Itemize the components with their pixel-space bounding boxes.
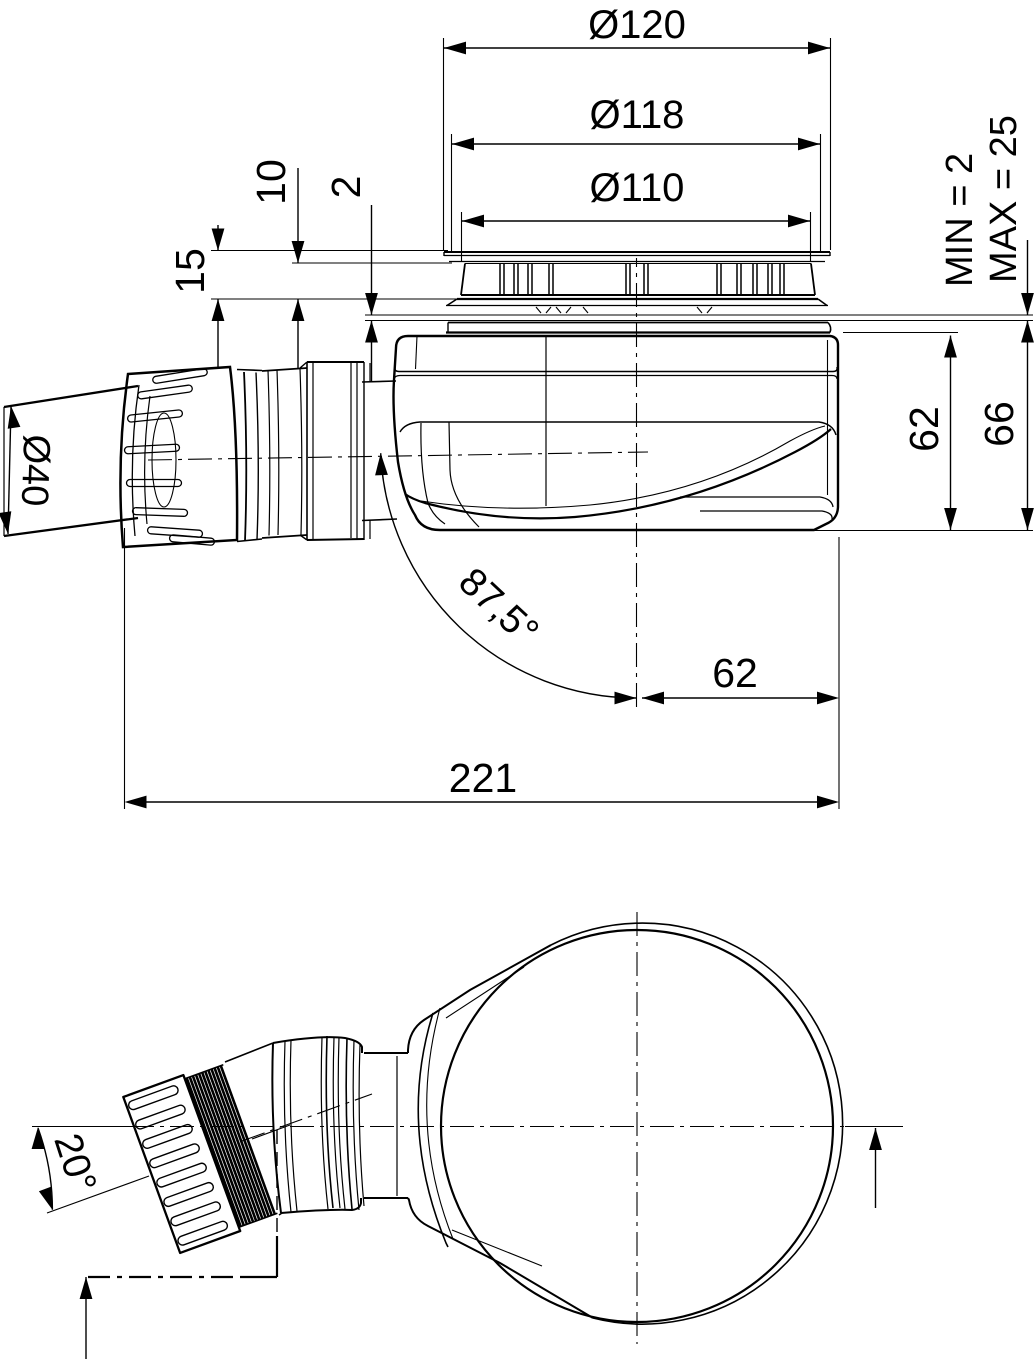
svg-text:66: 66 (976, 401, 1022, 447)
svg-text:Ø120: Ø120 (588, 3, 686, 47)
svg-text:10: 10 (248, 159, 294, 205)
svg-text:MIN = 2: MIN = 2 (939, 153, 981, 287)
svg-text:Ø110: Ø110 (590, 166, 685, 210)
svg-text:15: 15 (167, 248, 213, 294)
svg-text:Ø118: Ø118 (590, 93, 685, 137)
svg-text:MAX = 25: MAX = 25 (983, 115, 1025, 283)
svg-text:62: 62 (712, 650, 758, 696)
svg-text:2: 2 (323, 176, 369, 199)
svg-text:Ø40: Ø40 (13, 434, 57, 507)
svg-text:62: 62 (901, 406, 947, 452)
svg-text:221: 221 (449, 755, 517, 801)
